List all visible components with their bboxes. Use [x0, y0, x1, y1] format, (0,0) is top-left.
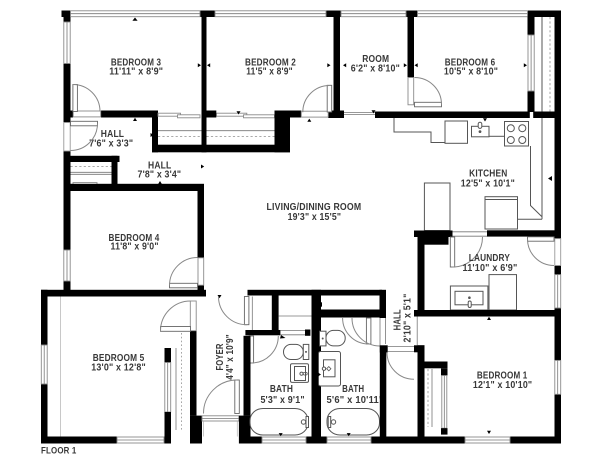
svg-text:BATH: BATH: [270, 384, 293, 395]
svg-text:7'6" x 3'3": 7'6" x 3'3": [89, 139, 133, 150]
svg-text:12'1" x 10'10": 12'1" x 10'10": [473, 380, 532, 391]
svg-text:5'3" x 9'1": 5'3" x 9'1": [260, 395, 304, 406]
svg-text:7'8" x 3'4": 7'8" x 3'4": [138, 170, 182, 181]
svg-text:10'5" x 8'10": 10'5" x 8'10": [444, 67, 498, 78]
svg-text:2'10" x 5'1": 2'10" x 5'1": [403, 294, 414, 343]
svg-text:12'5" x 10'1": 12'5" x 10'1": [461, 179, 515, 190]
svg-text:4'4" x 10'9": 4'4" x 10'9": [225, 334, 236, 380]
svg-text:FLOOR 1: FLOOR 1: [41, 445, 77, 456]
svg-text:11'8" x 9'0": 11'8" x 9'0": [111, 241, 159, 252]
svg-text:13'0" x 12'8": 13'0" x 12'8": [91, 362, 146, 373]
svg-text:11'5" x 8'9": 11'5" x 8'9": [246, 67, 293, 78]
svg-text:5'6" x 10'11": 5'6" x 10'11": [327, 395, 384, 406]
svg-text:6'2" x 8'10": 6'2" x 8'10": [351, 63, 400, 74]
svg-text:11'11" x 8'9": 11'11" x 8'9": [109, 67, 163, 78]
svg-text:BATH: BATH: [342, 384, 364, 395]
svg-text:11'10" x 6'9": 11'10" x 6'9": [463, 263, 518, 274]
svg-text:19'3" x 15'5": 19'3" x 15'5": [288, 212, 342, 223]
